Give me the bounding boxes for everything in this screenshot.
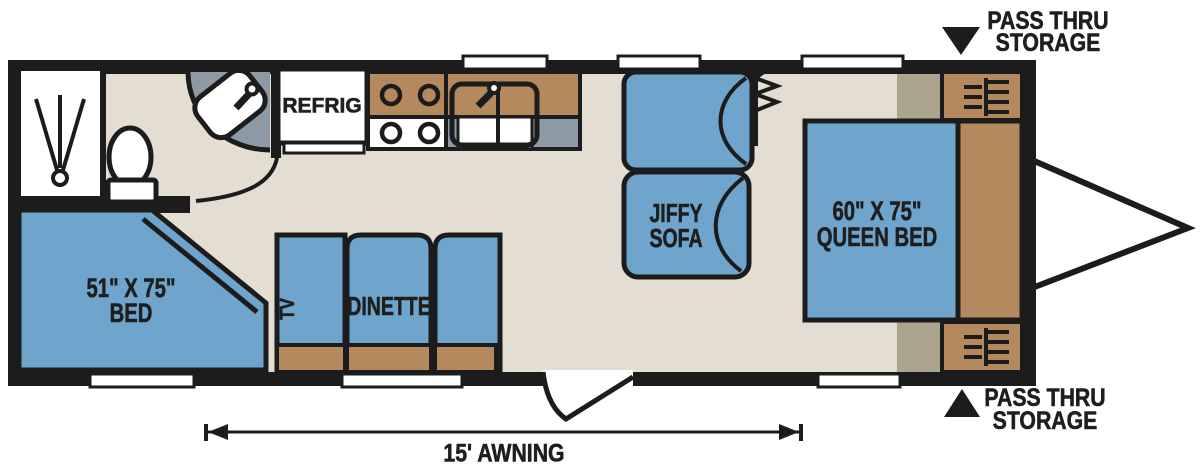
dinette-base bbox=[347, 345, 431, 372]
sink-counter bbox=[446, 72, 580, 117]
awning-dimension bbox=[206, 424, 801, 441]
arrow-down-icon bbox=[942, 27, 980, 55]
jiffy-sofa-label-line2: SOFA bbox=[649, 226, 702, 251]
arrow-up-icon bbox=[944, 389, 980, 417]
windows-top bbox=[463, 56, 903, 69]
queen-bed-headboard bbox=[958, 121, 1022, 320]
dinette-bench-base bbox=[435, 345, 496, 372]
faucet-icon bbox=[247, 84, 258, 95]
refrigerator-label: REFRIG bbox=[282, 96, 361, 117]
rear-bed-name: BED bbox=[86, 301, 175, 326]
tv-cabinet-base bbox=[277, 345, 345, 372]
queen-bed-size: 60" X 75" bbox=[817, 198, 937, 224]
queen-bed-name: QUEEN BED bbox=[817, 224, 937, 250]
window-icon bbox=[802, 56, 903, 69]
travel-trailer-floorplan: REFRIG TV DINETTE JIFFY SOFA 51" X 75" B… bbox=[0, 0, 1200, 472]
stove-front bbox=[368, 117, 446, 149]
rear-bed-label: 51" X 75" BED bbox=[86, 276, 175, 326]
window-icon bbox=[818, 374, 900, 387]
hitch-frame-icon bbox=[1032, 160, 1188, 288]
queen-bed-label: 60" X 75" QUEEN BED bbox=[817, 198, 937, 250]
window-icon bbox=[90, 374, 194, 387]
awning-label: 15' AWNING bbox=[443, 442, 564, 467]
arrow-right-icon bbox=[779, 424, 799, 440]
wardrobe-top bbox=[897, 74, 942, 121]
arrow-left-icon bbox=[208, 424, 228, 440]
wardrobe-bottom bbox=[897, 321, 942, 372]
jiffy-sofa-label: JIFFY SOFA bbox=[649, 201, 702, 251]
dinette-label: DINETTE bbox=[347, 293, 430, 319]
kitchen bbox=[368, 72, 580, 149]
stove-counter bbox=[368, 72, 446, 117]
pass-thru-bottom-line2: STORAGE bbox=[984, 410, 1105, 433]
window-icon bbox=[463, 56, 547, 69]
pass-thru-top-line2: STORAGE bbox=[987, 32, 1108, 54]
pass-thru-storage-bottom-label: PASS THRU STORAGE bbox=[984, 387, 1105, 433]
window-icon bbox=[342, 374, 462, 387]
window-icon bbox=[618, 56, 700, 69]
toilet-icon bbox=[108, 128, 156, 202]
entry-door bbox=[543, 370, 633, 419]
pass-thru-storage-top-label: PASS THRU STORAGE bbox=[987, 10, 1108, 54]
tv-label: TV bbox=[278, 298, 298, 320]
